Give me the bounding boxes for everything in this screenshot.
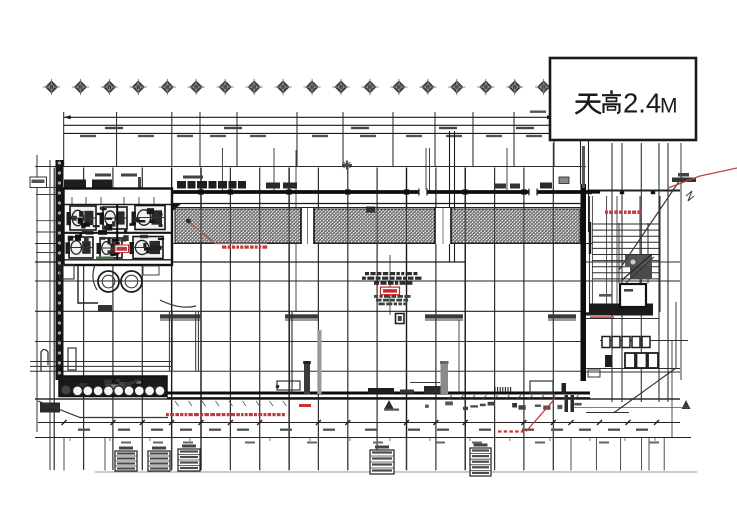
svg-text:M: M (660, 95, 678, 118)
svg-text:2.4: 2.4 (623, 88, 661, 119)
